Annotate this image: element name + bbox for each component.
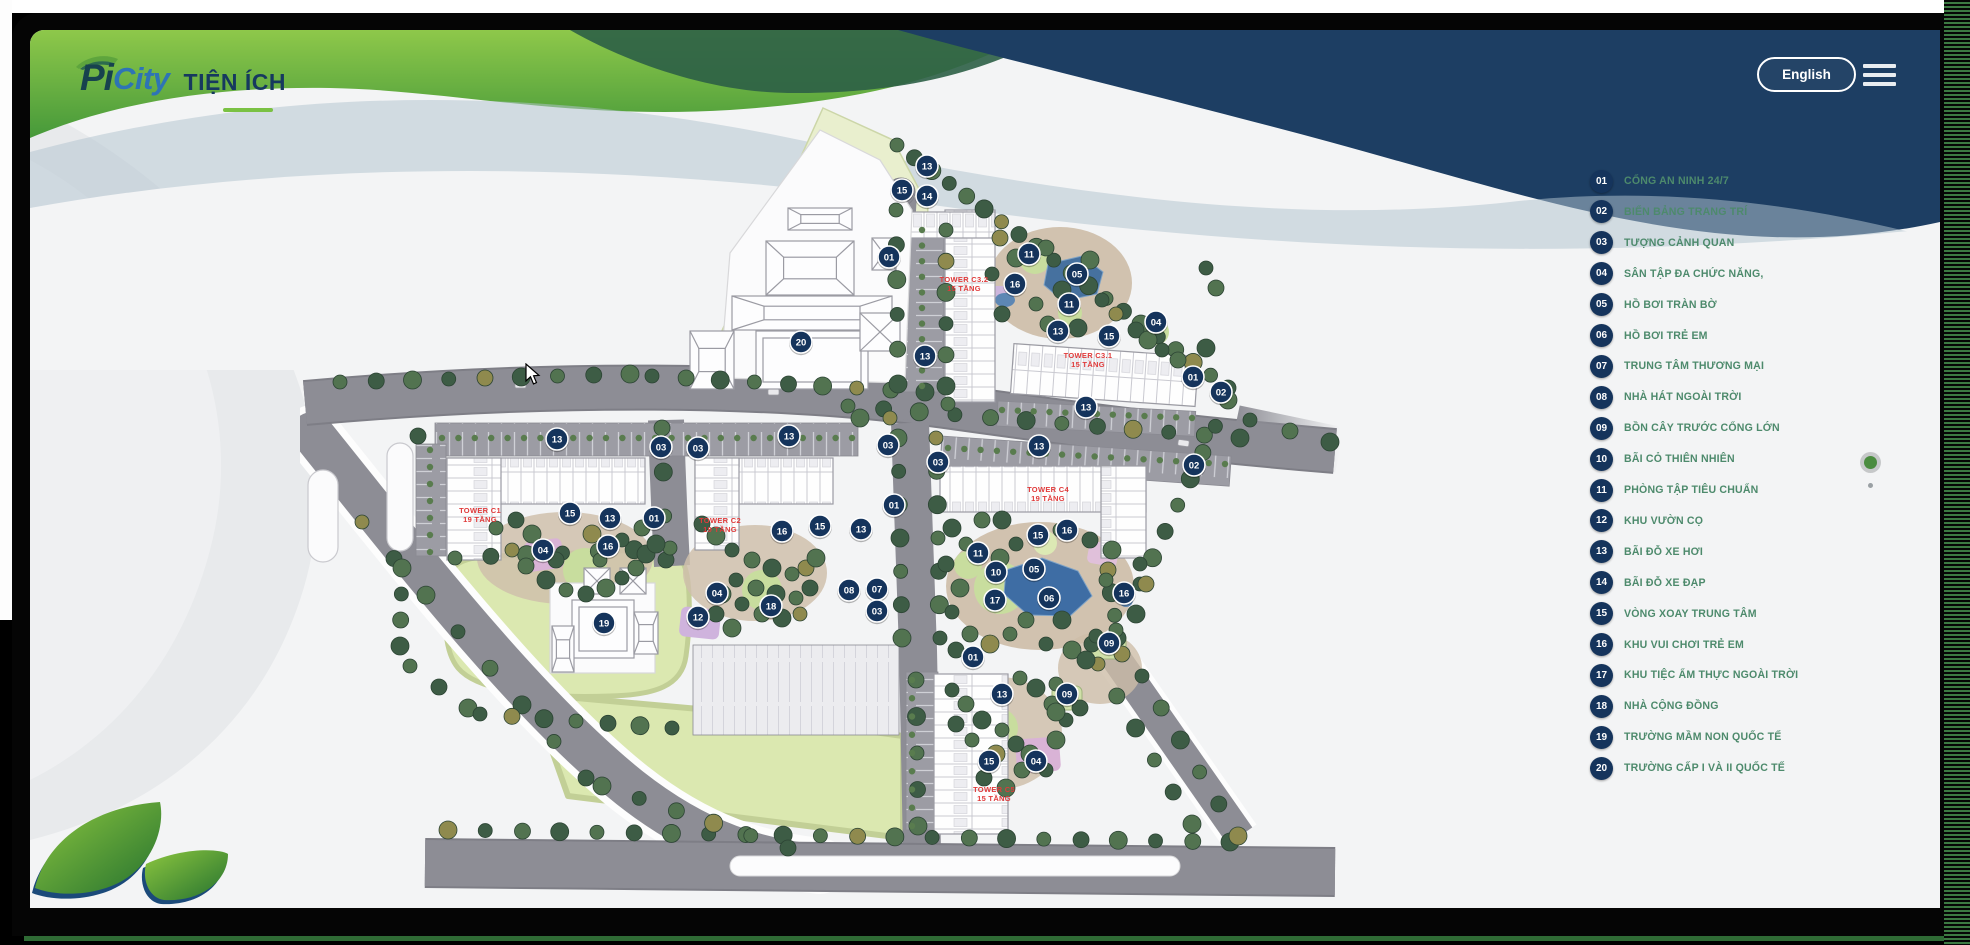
legend-number-badge: 11 bbox=[1590, 479, 1613, 502]
legend-item-06[interactable]: 06HỒ BƠI TRẺ EM bbox=[1590, 324, 1711, 348]
svg-text:13: 13 bbox=[1081, 402, 1092, 413]
svg-text:03: 03 bbox=[933, 457, 944, 468]
map-marker-09[interactable]: 09 bbox=[1055, 683, 1079, 707]
legend-item-02[interactable]: 02BIỂN BẢNG TRANG TRÍ bbox=[1590, 200, 1752, 224]
map-marker-15[interactable]: 15 bbox=[977, 750, 1001, 774]
legend-label: KHU TIỆC ẨM THỰC NGOÀI TRỜI bbox=[1624, 669, 1798, 681]
map-marker-11[interactable]: 11 bbox=[1017, 243, 1041, 267]
map-marker-03[interactable]: 03 bbox=[926, 451, 950, 475]
legend-item-09[interactable]: 09BỒN CÂY TRƯỚC CỔNG LỚN bbox=[1590, 416, 1786, 440]
legend-item-15[interactable]: 15VÒNG XOAY TRUNG TÂM bbox=[1590, 602, 1762, 626]
svg-text:06: 06 bbox=[1044, 593, 1055, 604]
legend-label: TRƯỜNG MẦM NON QUỐC TẾ bbox=[1624, 731, 1782, 743]
legend-number-badge: 20 bbox=[1590, 757, 1613, 780]
svg-text:13: 13 bbox=[856, 524, 867, 535]
legend-label: KHU VUI CHƠI TRẺ EM bbox=[1624, 639, 1744, 651]
map-marker-01[interactable]: 01 bbox=[882, 494, 906, 518]
legend-item-11[interactable]: 11PHÒNG TẬP TIÊU CHUẨN bbox=[1590, 478, 1764, 502]
svg-text:16: 16 bbox=[1119, 588, 1130, 599]
map-marker-11[interactable]: 11 bbox=[966, 542, 990, 566]
svg-text:02: 02 bbox=[1216, 387, 1227, 398]
map-marker-11[interactable]: 11 bbox=[1057, 293, 1081, 317]
legend-number-badge: 16 bbox=[1590, 633, 1613, 656]
legend-label: NHÀ CỘNG ĐỒNG bbox=[1624, 700, 1719, 712]
svg-text:08: 08 bbox=[844, 585, 855, 596]
legend-number-badge: 12 bbox=[1590, 509, 1613, 532]
svg-text:15 TẦNG: 15 TẦNG bbox=[947, 283, 981, 293]
legend-number-badge: 03 bbox=[1590, 231, 1613, 254]
language-button[interactable]: English bbox=[1757, 57, 1856, 92]
map-marker-12[interactable]: 12 bbox=[686, 606, 710, 630]
pagination-dot-active[interactable] bbox=[1860, 452, 1881, 473]
legend-number-badge: 14 bbox=[1590, 571, 1613, 594]
legend-number-badge: 09 bbox=[1590, 417, 1613, 440]
svg-text:13: 13 bbox=[1034, 441, 1045, 452]
svg-text:02: 02 bbox=[1189, 460, 1200, 471]
svg-text:20: 20 bbox=[796, 337, 807, 348]
legend-item-14[interactable]: 14BÃI ĐỖ XE ĐẠP bbox=[1590, 571, 1709, 595]
svg-text:16: 16 bbox=[1010, 279, 1021, 290]
map-marker-16[interactable]: 16 bbox=[1003, 273, 1027, 297]
legend-item-08[interactable]: 08NHÀ HÁT NGOÀI TRỜI bbox=[1590, 385, 1746, 409]
legend-number-badge: 02 bbox=[1590, 200, 1613, 223]
svg-text:05: 05 bbox=[1072, 269, 1083, 280]
legend-label: BIỂN BẢNG TRANG TRÍ bbox=[1624, 206, 1747, 218]
frame-bottom-accent bbox=[24, 936, 1944, 941]
map-marker-01[interactable]: 01 bbox=[961, 646, 985, 670]
legend-number-badge: 06 bbox=[1590, 324, 1613, 347]
corner-leaf-decoration bbox=[30, 788, 270, 908]
svg-text:15: 15 bbox=[897, 185, 908, 196]
legend-number-badge: 04 bbox=[1590, 262, 1613, 285]
legend-label: HỒ BƠI TRẺ EM bbox=[1624, 330, 1708, 342]
map-marker-06[interactable]: 06 bbox=[1037, 587, 1061, 611]
legend-item-18[interactable]: 18NHÀ CỘNG ĐỒNG bbox=[1590, 694, 1723, 718]
legend-number-badge: 10 bbox=[1590, 448, 1613, 471]
legend-item-16[interactable]: 16KHU VUI CHƠI TRẺ EM bbox=[1590, 633, 1749, 657]
svg-text:03: 03 bbox=[656, 442, 667, 453]
legend-item-13[interactable]: 13BÃI ĐỖ XE HƠI bbox=[1590, 540, 1706, 564]
legend-item-10[interactable]: 10BÃI CỎ THIÊN NHIÊN bbox=[1590, 447, 1739, 471]
legend-number-badge: 01 bbox=[1590, 170, 1613, 193]
map-marker-16[interactable]: 16 bbox=[1055, 519, 1079, 543]
legend-label: TRƯỜNG CẤP I VÀ II QUỐC TẾ bbox=[1624, 762, 1785, 774]
svg-text:15: 15 bbox=[565, 508, 576, 519]
map-marker-03[interactable]: 03 bbox=[876, 434, 900, 458]
svg-text:16: 16 bbox=[603, 541, 614, 552]
map-marker-15[interactable]: 15 bbox=[1097, 325, 1121, 349]
svg-text:15 TẦNG: 15 TẦNG bbox=[1071, 359, 1105, 369]
section-pagination bbox=[1860, 452, 1884, 512]
svg-text:TOWER C4: TOWER C4 bbox=[1027, 485, 1069, 494]
legend-label: BÃI ĐỖ XE ĐẠP bbox=[1624, 577, 1706, 589]
legend-label: BÃI ĐỖ XE HƠI bbox=[1624, 546, 1703, 558]
svg-text:19: 19 bbox=[599, 618, 610, 629]
svg-text:13: 13 bbox=[605, 513, 616, 524]
svg-text:13: 13 bbox=[997, 689, 1008, 700]
svg-text:07: 07 bbox=[872, 584, 883, 595]
legend-item-20[interactable]: 20TRƯỜNG CẤP I VÀ II QUỐC TẾ bbox=[1590, 756, 1792, 780]
svg-text:04: 04 bbox=[538, 545, 549, 556]
svg-text:TOWER C3.1: TOWER C3.1 bbox=[1064, 351, 1113, 360]
legend-label: KHU VƯỜN CỌ bbox=[1624, 515, 1703, 527]
road-median-strip bbox=[730, 856, 1180, 876]
map-marker-13[interactable]: 13 bbox=[777, 425, 801, 449]
map-marker-08[interactable]: 08 bbox=[837, 579, 861, 603]
logo-city-text: City bbox=[113, 52, 170, 106]
legend-item-19[interactable]: 19TRƯỜNG MẦM NON QUỐC TẾ bbox=[1590, 725, 1788, 749]
svg-text:15: 15 bbox=[815, 521, 826, 532]
frame-right-edge bbox=[1944, 0, 1970, 945]
map-marker-03[interactable]: 03 bbox=[649, 436, 673, 460]
legend-item-07[interactable]: 07TRUNG TÂM THƯƠNG MẠI bbox=[1590, 354, 1770, 378]
map-marker-15[interactable]: 15 bbox=[808, 515, 832, 539]
legend-label: TƯỢNG CẢNH QUAN bbox=[1624, 237, 1734, 249]
map-marker-18[interactable]: 18 bbox=[759, 595, 783, 619]
map-marker-05[interactable]: 05 bbox=[1022, 558, 1046, 582]
svg-text:04: 04 bbox=[1031, 756, 1042, 767]
pagination-dot[interactable] bbox=[1868, 483, 1873, 488]
svg-text:11: 11 bbox=[1024, 249, 1035, 260]
map-marker-04[interactable]: 04 bbox=[705, 582, 729, 606]
legend-label: HỒ BƠI TRÀN BỜ bbox=[1624, 299, 1717, 311]
legend-number-badge: 13 bbox=[1590, 540, 1613, 563]
map-marker-13[interactable]: 13 bbox=[598, 507, 622, 531]
map-marker-10[interactable]: 10 bbox=[984, 561, 1008, 585]
svg-text:03: 03 bbox=[693, 443, 704, 454]
svg-text:18: 18 bbox=[766, 601, 777, 612]
frame-top-edge bbox=[0, 0, 1944, 13]
legend-label: NHÀ HÁT NGOÀI TRỜI bbox=[1624, 391, 1741, 403]
svg-text:15: 15 bbox=[1033, 530, 1044, 541]
map-marker-04[interactable]: 04 bbox=[1024, 750, 1048, 774]
map-marker-09[interactable]: 09 bbox=[1097, 632, 1121, 656]
hamburger-menu-icon[interactable] bbox=[1863, 64, 1896, 86]
legend-item-12[interactable]: 12KHU VƯỜN CỌ bbox=[1590, 509, 1706, 533]
legend-label: BỒN CÂY TRƯỚC CỔNG LỚN bbox=[1624, 422, 1780, 434]
map-marker-13[interactable]: 13 bbox=[913, 345, 937, 369]
page-title: TIỆN ÍCH bbox=[184, 52, 286, 112]
svg-text:13: 13 bbox=[784, 431, 795, 442]
logo-pi-text: Pi bbox=[80, 52, 113, 104]
tower-label: TOWER C119 TẦNG bbox=[459, 506, 501, 524]
legend-item-17[interactable]: 17KHU TIỆC ẨM THỰC NGOÀI TRỜI bbox=[1590, 663, 1806, 687]
map-marker-13[interactable]: 13 bbox=[990, 683, 1014, 707]
legend-number-badge: 18 bbox=[1590, 695, 1613, 718]
legend-label: VÒNG XOAY TRUNG TÂM bbox=[1624, 608, 1757, 620]
svg-text:13: 13 bbox=[922, 161, 933, 172]
svg-text:13: 13 bbox=[552, 434, 563, 445]
map-marker-15[interactable]: 15 bbox=[890, 179, 914, 203]
map-marker-13[interactable]: 13 bbox=[545, 428, 569, 452]
svg-text:11: 11 bbox=[973, 548, 984, 559]
svg-text:19 TẦNG: 19 TẦNG bbox=[1031, 493, 1065, 503]
svg-text:14: 14 bbox=[922, 191, 933, 202]
picity-amenities-page: PiCity TIỆN ÍCH English bbox=[30, 30, 1940, 908]
svg-text:TOWER C3.2: TOWER C3.2 bbox=[940, 275, 989, 284]
map-marker-13[interactable]: 13 bbox=[1046, 320, 1070, 344]
legend-number-badge: 15 bbox=[1590, 602, 1613, 625]
svg-text:09: 09 bbox=[1104, 638, 1115, 649]
frame-left-edge bbox=[0, 0, 12, 620]
svg-text:15 TẦNG: 15 TẦNG bbox=[977, 793, 1011, 803]
svg-text:12: 12 bbox=[693, 612, 704, 623]
map-marker-04[interactable]: 04 bbox=[531, 539, 555, 563]
svg-text:01: 01 bbox=[649, 513, 660, 524]
map-marker-15[interactable]: 15 bbox=[1026, 524, 1050, 548]
map-marker-16[interactable]: 16 bbox=[596, 535, 620, 559]
legend-item-03[interactable]: 03TƯỢNG CẢNH QUAN bbox=[1590, 231, 1739, 255]
legend-item-01[interactable]: 01CỔNG AN NINH 24/7 bbox=[1590, 169, 1733, 193]
map-marker-02[interactable]: 02 bbox=[1209, 381, 1233, 405]
tower-label: TOWER C219 TẦNG bbox=[699, 516, 741, 534]
svg-text:10: 10 bbox=[991, 567, 1002, 578]
svg-text:17: 17 bbox=[990, 595, 1001, 606]
map-marker-15[interactable]: 15 bbox=[558, 502, 582, 526]
svg-text:13: 13 bbox=[1053, 326, 1064, 337]
map-marker-19[interactable]: 19 bbox=[592, 612, 616, 636]
map-marker-05[interactable]: 05 bbox=[1065, 263, 1089, 287]
svg-text:11: 11 bbox=[1064, 299, 1075, 310]
master-plan-map: TOWER C3.215 TẦNGTOWER C3.115 TẦNGTOWER … bbox=[300, 88, 1340, 908]
legend-number-badge: 05 bbox=[1590, 293, 1613, 316]
svg-text:03: 03 bbox=[883, 440, 894, 451]
map-marker-17[interactable]: 17 bbox=[983, 589, 1007, 613]
legend-item-04[interactable]: 04SÂN TẬP ĐA CHỨC NĂNG, bbox=[1590, 262, 1769, 286]
svg-text:13: 13 bbox=[920, 351, 931, 362]
legend-number-badge: 08 bbox=[1590, 386, 1613, 409]
svg-text:04: 04 bbox=[712, 588, 723, 599]
svg-text:01: 01 bbox=[884, 252, 895, 263]
map-marker-20[interactable]: 20 bbox=[789, 331, 813, 355]
legend-label: SÂN TẬP ĐA CHỨC NĂNG, bbox=[1624, 268, 1764, 280]
map-marker-16[interactable]: 16 bbox=[770, 520, 794, 544]
svg-text:TOWER C5: TOWER C5 bbox=[973, 785, 1015, 794]
map-marker-02[interactable]: 02 bbox=[1182, 454, 1206, 478]
map-marker-04[interactable]: 04 bbox=[1144, 311, 1168, 335]
tower-label: TOWER C419 TẦNG bbox=[1027, 485, 1069, 503]
svg-text:01: 01 bbox=[968, 652, 979, 663]
map-marker-13[interactable]: 13 bbox=[849, 518, 873, 542]
map-marker-16[interactable]: 16 bbox=[1112, 582, 1136, 606]
legend-number-badge: 19 bbox=[1590, 726, 1613, 749]
svg-text:05: 05 bbox=[1029, 564, 1040, 575]
map-marker-14[interactable]: 14 bbox=[915, 185, 939, 209]
svg-text:19 TẦNG: 19 TẦNG bbox=[463, 514, 497, 524]
map-marker-01[interactable]: 01 bbox=[1181, 366, 1205, 390]
map-marker-13[interactable]: 13 bbox=[1027, 435, 1051, 459]
svg-text:16: 16 bbox=[777, 526, 788, 537]
legend-number-badge: 17 bbox=[1590, 664, 1613, 687]
map-marker-13[interactable]: 13 bbox=[915, 155, 939, 179]
svg-text:19 TẦNG: 19 TẦNG bbox=[703, 524, 737, 534]
svg-text:01: 01 bbox=[1188, 372, 1199, 383]
map-marker-07[interactable]: 07 bbox=[865, 578, 889, 602]
svg-text:15: 15 bbox=[1104, 331, 1115, 342]
legend-label: CỔNG AN NINH 24/7 bbox=[1624, 175, 1729, 187]
title-underline bbox=[223, 108, 273, 112]
map-marker-01[interactable]: 01 bbox=[642, 507, 666, 531]
map-marker-01[interactable]: 01 bbox=[877, 246, 901, 270]
legend-label: TRUNG TÂM THƯƠNG MẠI bbox=[1624, 360, 1764, 372]
legend-item-05[interactable]: 05HỒ BƠI TRÀN BỜ bbox=[1590, 293, 1721, 317]
legend-number-badge: 07 bbox=[1590, 355, 1613, 378]
svg-text:03: 03 bbox=[872, 606, 883, 617]
svg-text:04: 04 bbox=[1151, 317, 1162, 328]
svg-text:15: 15 bbox=[984, 756, 995, 767]
legend-label: BÃI CỎ THIÊN NHIÊN bbox=[1624, 453, 1735, 465]
map-marker-03[interactable]: 03 bbox=[865, 600, 889, 624]
svg-text:TOWER C1: TOWER C1 bbox=[459, 506, 501, 515]
svg-text:TOWER C2: TOWER C2 bbox=[699, 516, 741, 525]
map-marker-13[interactable]: 13 bbox=[1074, 396, 1098, 420]
svg-text:01: 01 bbox=[889, 500, 900, 511]
legend-label: PHÒNG TẬP TIÊU CHUẨN bbox=[1624, 484, 1758, 496]
svg-text:09: 09 bbox=[1062, 689, 1073, 700]
svg-text:16: 16 bbox=[1062, 525, 1073, 536]
tower-label: TOWER C515 TẦNG bbox=[973, 785, 1015, 803]
map-marker-03[interactable]: 03 bbox=[686, 437, 710, 461]
